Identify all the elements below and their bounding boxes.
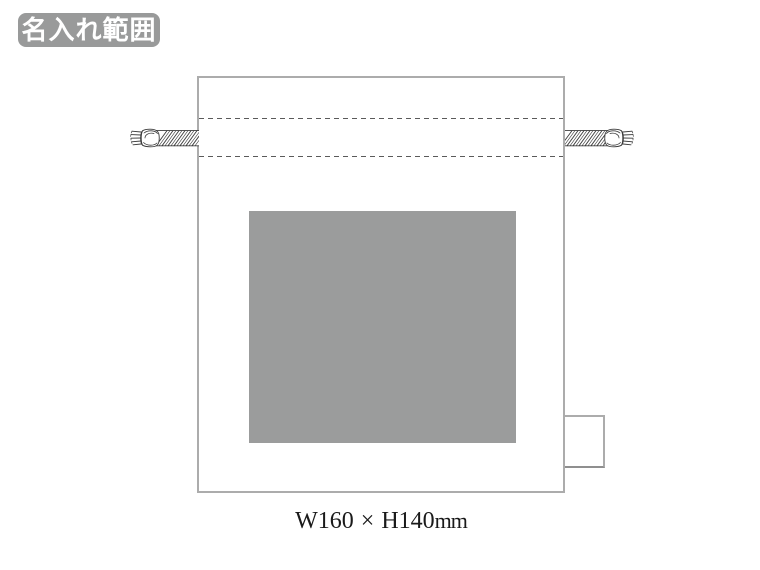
- print-size-separator: ×: [361, 508, 375, 534]
- drawstring-cord-right-icon: [565, 127, 635, 149]
- print-size-height: H140: [381, 508, 434, 534]
- print-size-unit: mm: [435, 508, 467, 533]
- print-range-badge: 名入れ範囲: [18, 13, 160, 47]
- bag-side-tag: [565, 415, 605, 468]
- drawstring-cord-left-icon: [129, 127, 199, 149]
- print-area-diagram: 名入れ範囲 W160: [0, 0, 760, 570]
- print-area: [249, 211, 516, 443]
- print-size-width: W160: [295, 508, 354, 534]
- drawstring-channel-line-bottom: [199, 156, 563, 157]
- print-size-label: W160×H140mm: [197, 508, 565, 535]
- drawstring-channel-line-top: [199, 118, 563, 119]
- print-range-badge-label: 名入れ範囲: [21, 15, 156, 45]
